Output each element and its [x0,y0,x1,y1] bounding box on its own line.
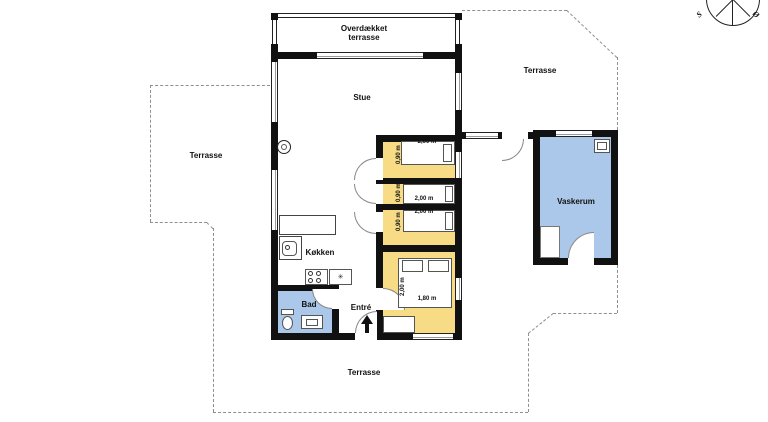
terrace-outline [617,265,618,313]
double-bed-length-label: 2,00 m [400,277,407,296]
pillow [445,212,453,230]
passage-door-swing [502,139,524,161]
front-door-opening [355,333,377,340]
bed1-width-label: 0,90 m [396,145,403,164]
compass-needle [732,0,733,25]
bathroom-label: Bad [301,300,316,309]
bed2-width-label: 0,90 m [396,183,403,202]
bed2-length-label: 2,00 m [415,196,434,203]
wood-stove-core [281,144,287,150]
terrace-left-label: Terrasse [190,151,223,160]
terrace-top-right-label: Terrasse [524,66,557,75]
pillow [443,144,452,162]
burner-icon [308,271,313,276]
laundry-door-opening [568,258,594,265]
burner-icon [316,271,321,276]
toilet-bowl [282,316,293,330]
window-east-2 [455,152,462,178]
covered-terrace-rail-top [272,13,456,18]
terrace-outline [150,85,270,86]
faucet-icon [285,245,290,250]
burner-icon [308,278,313,283]
bed3-width-label: 0,90 m [396,212,403,231]
bathroom-sink-basin [306,319,318,326]
window-terrace-doors [317,52,423,59]
window-east-3 [455,278,462,300]
terrace-outline [213,228,214,412]
laundry-wall-right [611,137,618,258]
terrace-post [455,13,462,20]
pillow [402,260,423,272]
bedroom2-door-swing [354,184,376,204]
bed3-length-label: 2,00 m [415,209,434,216]
toilet-tank [281,309,294,315]
freezer-icon: ✳ [338,273,344,281]
floor-plan: S Ø [0,0,768,422]
terrace-outline [528,313,554,334]
dresser [383,316,415,333]
covered-terrace-label-line2: terrasse [348,33,379,42]
terrace-outline [462,10,567,11]
kitchen-label: Køkken [306,248,335,257]
bed1-length-label: 2,00 m [418,139,437,146]
bedroom3-door-opening [376,212,383,232]
kitchen-counter [279,215,336,235]
laundry-counter [540,226,560,258]
window-passage [466,132,498,139]
laundry-wall-left [533,137,540,258]
bedroom4-door-opening [376,288,383,310]
living-room-label: Stue [353,93,370,102]
laundry-room-label: Vaskerum [557,197,595,206]
terrace-outline [566,10,617,58]
pillow [445,186,453,202]
freezer: ✳ [329,269,352,285]
bedroom1-door-swing [354,158,376,180]
terrace-post [271,44,278,52]
bathroom-door-opening [332,289,339,309]
window-bedroom4 [413,333,453,340]
terrace-post [271,13,278,20]
terrace-outline [213,412,528,413]
compass-south-label: S [695,10,704,20]
terrace-outline [150,85,151,222]
terrace-outline [617,57,618,130]
terrace-outline [150,222,207,223]
double-bed-width-label: 1,80 m [418,296,437,303]
entry-label: Entré [351,303,371,312]
passage-door-opening [502,132,528,139]
bedroom2-door-opening [376,184,383,204]
laundry-tub-basin [597,142,607,150]
terrace-bottom-label: Terrasse [348,368,381,377]
covered-terrace-label-line1: Overdækket [341,24,387,33]
pillow [428,260,449,272]
terrace-outline [528,333,529,412]
bedroom1-door-opening [376,158,383,180]
wall-bedroom3-4 [383,245,455,252]
window-laundry [556,130,592,137]
burner-icon [316,278,321,283]
entry-arrow-stem [365,323,369,333]
terrace-outline [553,313,617,314]
terrace-post [455,44,462,52]
bedroom3-door-swing [354,212,376,234]
window-east-1 [455,73,462,110]
window-west-2 [271,170,278,230]
window-west-1 [271,62,278,122]
